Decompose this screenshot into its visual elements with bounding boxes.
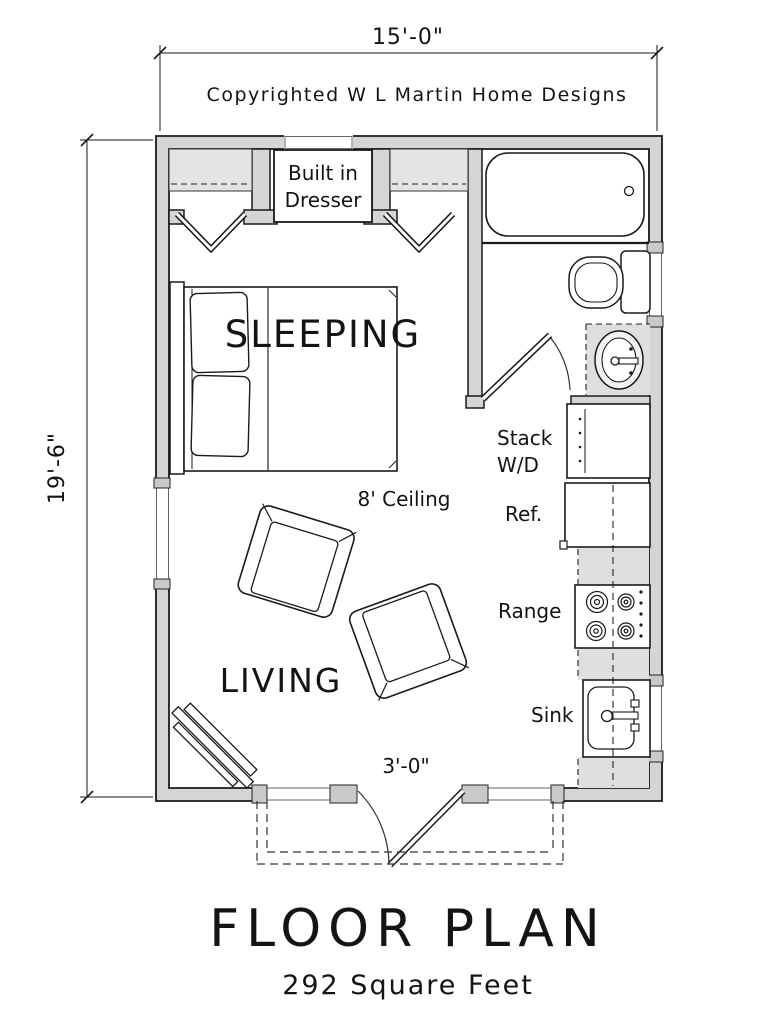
living-room-label: LIVING	[220, 661, 343, 700]
floor-plan-drawing: 15'-0" 19'-6" Copyrighted W L Martin Hom…	[0, 0, 767, 1024]
window-bottom-right	[487, 785, 553, 803]
armchair-left	[236, 504, 356, 620]
refrigerator	[560, 483, 650, 549]
armchair-right	[347, 581, 469, 700]
left-dimension: 19'-6"	[45, 134, 153, 803]
plan-area-subtitle: 292 Square Feet	[282, 970, 534, 1001]
pillow-bottom	[191, 375, 250, 456]
sleeping-room-label: SLEEPING	[225, 313, 421, 356]
bed	[170, 282, 397, 474]
ceiling-note: 8' Ceiling	[358, 487, 451, 511]
toilet	[569, 251, 650, 313]
bathroom-door	[483, 335, 570, 399]
stacked-washer-dryer	[567, 404, 650, 478]
floor-plan-page: 15'-0" 19'-6" Copyrighted W L Martin Hom…	[0, 0, 767, 1024]
top-dimension: 15'-0"	[154, 25, 663, 131]
window-above-dresser	[284, 134, 353, 151]
closet-left	[169, 149, 252, 249]
porch-outline	[257, 801, 563, 864]
stack-wd-label-line2: W/D	[497, 453, 539, 477]
entry-door-dimension: 3'-0"	[382, 754, 429, 778]
copyright-text: Copyrighted W L Martin Home Designs	[207, 84, 628, 106]
kitchen-sink	[583, 680, 650, 757]
sink-label: Sink	[531, 703, 574, 727]
built-in-dresser: Built in Dresser	[274, 150, 372, 222]
bathroom-vanity	[586, 324, 650, 395]
dresser-label-line1: Built in	[288, 161, 358, 185]
sink-faucet	[602, 711, 613, 722]
closet-right	[385, 149, 468, 249]
stack-wd-label-line1: Stack	[497, 426, 553, 450]
dresser-label-line2: Dresser	[285, 188, 363, 212]
bathtub	[482, 153, 649, 243]
window-bottom-left	[266, 785, 331, 803]
width-dimension-label: 15'-0"	[372, 25, 444, 50]
window-left-wall	[154, 487, 171, 580]
plan-title: FLOOR PLAN	[209, 899, 607, 959]
entry-door-opening	[356, 785, 463, 803]
refrigerator-label: Ref.	[505, 502, 542, 526]
refrigerator-handle	[560, 541, 567, 549]
depth-dimension-label: 19'-6"	[45, 432, 70, 504]
bifold-door-left	[177, 214, 245, 249]
bathroom-door-swing	[550, 337, 570, 390]
range-label: Range	[498, 599, 561, 623]
vanity-faucet	[611, 357, 619, 365]
headboard	[170, 282, 184, 474]
bathroom-west-wall	[468, 149, 482, 399]
corner-tv-console	[166, 699, 261, 794]
